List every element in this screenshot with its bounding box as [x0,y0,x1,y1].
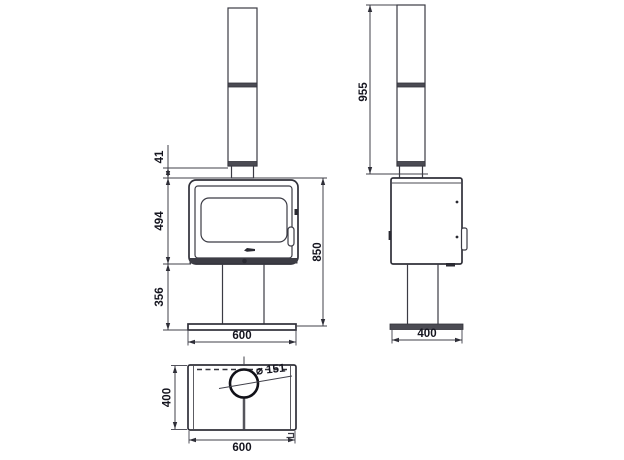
stove-dimension-drawing: 41 494 356 850 600 [0,0,624,460]
side-pipe-joint-band [397,83,425,87]
dim-front-overall-height: 850 [312,242,324,261]
front-pipe-bottom-band [228,162,257,167]
top-flue-outlet-circle [230,370,258,398]
side-flue-collar [400,166,423,178]
side-screw-bottom [456,236,459,239]
dim-top-width: 600 [232,442,251,454]
side-view: 955 400 [358,5,467,344]
front-pipe-joint-band [228,83,257,87]
top-view: 400 600 ⌀ 151 [162,357,297,455]
dim-side-height-with-flue: 955 [358,82,370,102]
dim-side-depth: 400 [417,328,436,340]
front-hinge-mark [295,209,299,215]
front-flue-collar [232,166,254,178]
side-stove-body [391,178,462,264]
dim-front-firebox-height: 494 [154,211,166,231]
front-stove-body [189,180,298,264]
top-corner-notch [287,434,294,438]
side-pipe-bottom-band [397,162,425,167]
technical-drawing-page: 41 494 356 850 600 [0,0,624,460]
front-air-knob [242,259,247,264]
dim-front-width: 600 [232,330,251,342]
front-view: 41 494 356 850 600 [154,8,327,346]
dim-top-depth: 400 [162,388,174,407]
side-foot-mark [446,263,455,267]
side-screw-top [456,201,459,204]
side-latch-tab [389,231,392,240]
dim-front-flue-offset: 41 [154,150,166,163]
side-door-handle [462,228,468,250]
front-door-handle [288,227,294,246]
dim-front-pedestal-height: 356 [154,287,166,306]
